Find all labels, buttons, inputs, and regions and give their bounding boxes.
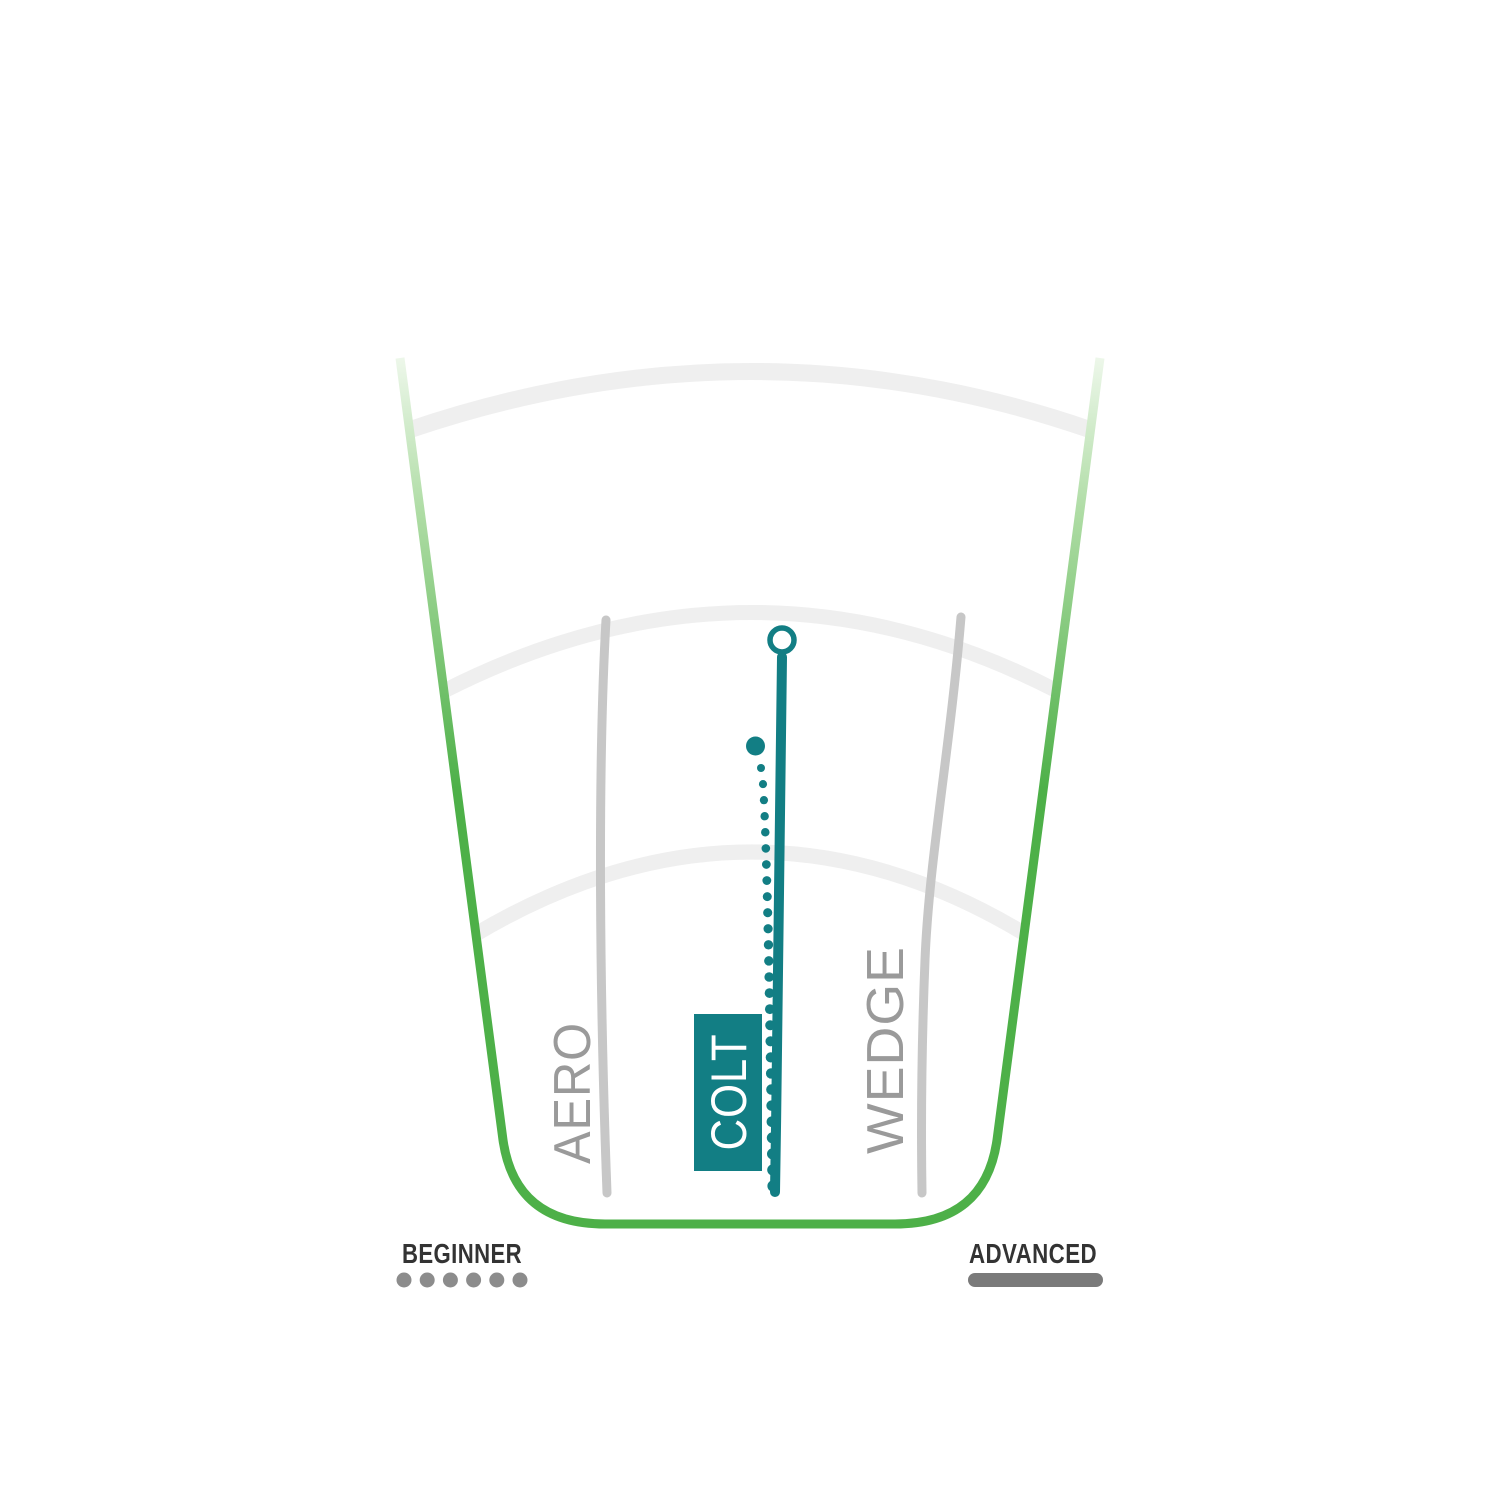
path-dot [759,780,767,788]
disc-label-wedge: WEDGE [857,946,915,1154]
path-dot [764,956,773,965]
flight-chart: AERO COLT WEDGE BEGINNER ADVANCED [0,0,1500,1500]
flight-chart-page: AERO COLT WEDGE BEGINNER ADVANCED [0,0,1500,1500]
path-dot [443,1273,458,1288]
disc-label-aero: AERO [544,1022,602,1164]
beginner-dotted-marker [397,1273,528,1288]
advanced-solid-marker [968,1273,1103,1287]
path-dot [760,796,768,804]
colt-landing-circle-icon [770,628,794,652]
path-dot [763,908,772,917]
path-dot [762,876,771,885]
path-dot [466,1273,481,1288]
distance-arc-mid [444,613,1057,692]
path-dot [762,860,771,869]
path-dot [762,844,771,853]
path-dot [763,924,772,933]
path-dot [763,892,772,901]
path-dot [489,1273,504,1288]
path-dot [513,1273,528,1288]
path-dot [760,812,768,820]
path-dot [420,1273,435,1288]
beginner-label: BEGINNER [402,1238,522,1269]
path-dot [764,972,774,982]
distance-arc-near [476,852,1025,934]
path-dot [757,764,765,772]
path-dot [397,1273,412,1288]
colt-flight-path [775,657,782,1192]
advanced-label: ADVANCED [969,1238,1097,1269]
path-dot [746,737,765,756]
disc-label-colt: COLT [701,1034,757,1151]
distance-arc-far [409,372,1091,431]
path-dot [761,828,769,836]
path-dot [764,940,773,949]
